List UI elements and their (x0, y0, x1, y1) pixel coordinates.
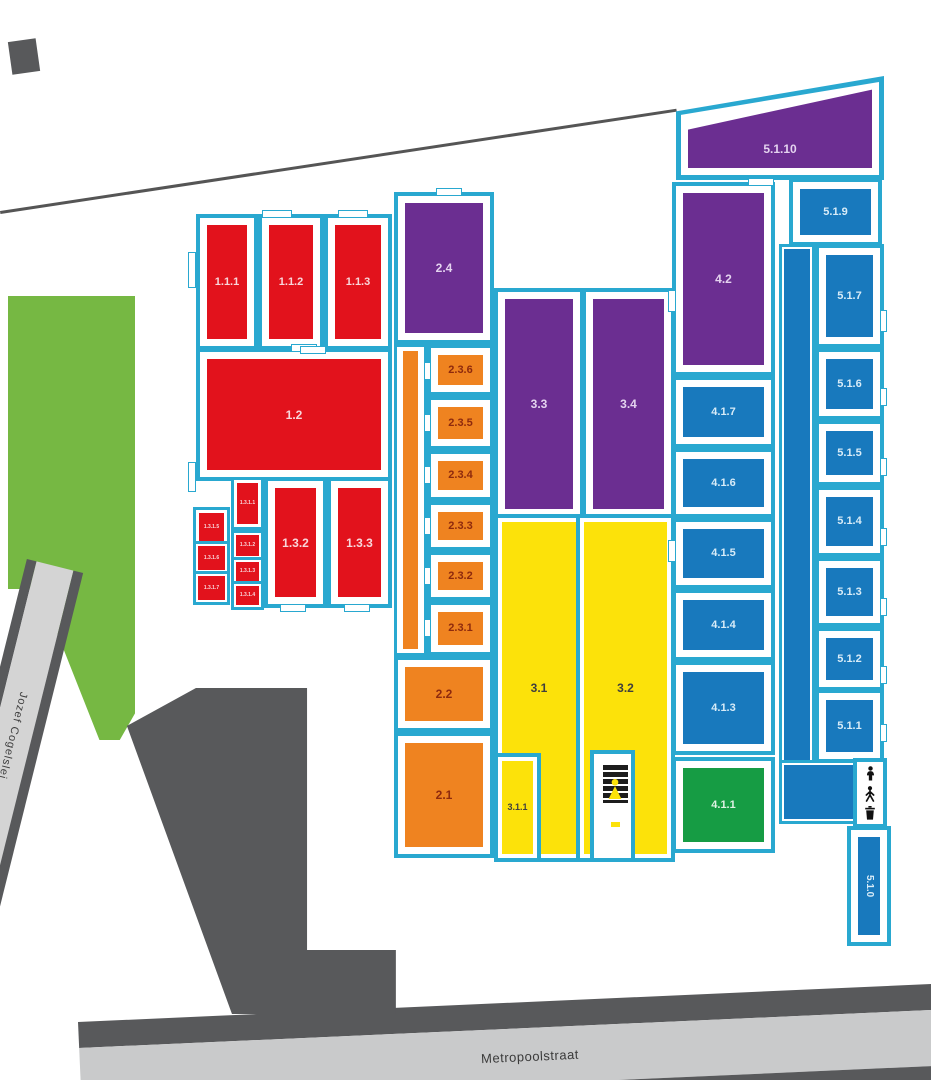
unit-fill (403, 351, 418, 649)
unit-4.1.6[interactable]: 4.1.6 (672, 448, 775, 518)
unit-label: 4.1.5 (711, 548, 735, 559)
door-mark (280, 604, 306, 612)
unit-fill: 2.3.5 (438, 407, 483, 439)
unit-fill: 1.3.1.1 (237, 483, 258, 524)
stairwell[interactable] (590, 750, 635, 862)
unit-label: 2.3.2 (448, 571, 472, 582)
unit-label: 3.4 (620, 398, 637, 410)
unit-fill: 1.3.1.7 (198, 576, 225, 600)
door-mark (344, 604, 370, 612)
unit-fill: 1.1.3 (335, 225, 381, 339)
door-mark (880, 724, 887, 742)
unit-label: 5.1.4 (837, 516, 861, 527)
door-mark (880, 598, 887, 616)
unit-corridor-5[interactable] (779, 244, 815, 768)
unit-fill (784, 249, 810, 763)
unit-4.2[interactable]: 4.2 (672, 182, 775, 376)
unit-fill: 1.3.1.5 (199, 513, 224, 541)
door-mark (668, 290, 676, 312)
unit-label: 5.1.1 (837, 721, 861, 732)
unit-fill: 5.1.0 (858, 837, 880, 935)
door-mark (880, 666, 887, 684)
unit-fill: 4.1.1 (683, 768, 764, 842)
unit-label: 2.3.6 (448, 365, 472, 376)
person-icon (864, 766, 877, 781)
unit-fill: 2.3.6 (438, 355, 483, 385)
unit-fill: 1.3.3 (338, 488, 381, 597)
site-plan: Metropoolstraat Jozef Cogelslei 1.1.11.1… (0, 0, 931, 1080)
door-mark (424, 567, 431, 585)
unit-label: 3.1 (531, 682, 548, 694)
unit-2.3.3[interactable]: 2.3.3 (427, 501, 494, 551)
unit-label: 2.4 (436, 262, 453, 274)
unit-fill: 2.2 (405, 667, 483, 721)
unit-5.1.6[interactable]: 5.1.6 (815, 348, 884, 420)
door-mark (424, 414, 431, 432)
unit-label: 4.1.6 (711, 478, 735, 489)
door-mark (880, 528, 887, 546)
door-mark (262, 210, 292, 218)
unit-fill: 5.1.9 (800, 189, 871, 235)
unit-label: 1.1.3 (346, 277, 370, 288)
unit-fill: 4.1.7 (683, 387, 764, 437)
unit-fill: 5.1.7 (826, 255, 873, 337)
unit-1.1.1[interactable]: 1.1.1 (196, 214, 258, 350)
unit-fill: 5.1.1 (826, 700, 873, 752)
unit-fill: 1.3.1.2 (236, 535, 259, 556)
door-mark (424, 362, 431, 380)
unit-label: 1.3.1.1 (240, 501, 255, 506)
door-mark (880, 388, 887, 406)
unit-fill: 1.3.2 (275, 488, 316, 597)
unit-label: 1.3.1.5 (204, 525, 219, 530)
unit-1.3.1.7[interactable]: 1.3.1.7 (193, 571, 230, 605)
unit-2.3.1[interactable]: 2.3.1 (427, 601, 494, 656)
unit-fill: 5.1.6 (826, 359, 873, 409)
unit-label: 1.1.2 (279, 277, 303, 288)
door-mark (424, 619, 431, 637)
unit-label: 5.1.5 (837, 448, 861, 459)
unit-fill: 2.3.4 (438, 461, 483, 490)
street-metropoolstraat: Metropoolstraat (78, 982, 931, 1080)
door-mark (748, 178, 774, 186)
unit-5.1.4[interactable]: 5.1.4 (815, 486, 884, 557)
property-boundary-line (0, 109, 677, 214)
unit-1.3.3[interactable]: 1.3.3 (327, 477, 392, 608)
unit-label: 2.1 (436, 789, 453, 801)
unit-1.3.1.6[interactable]: 1.3.1.6 (193, 541, 230, 575)
unit-corridor-2[interactable] (394, 344, 427, 656)
neighbor-building (125, 686, 400, 1016)
unit-fill: 3.1.1 (502, 761, 533, 854)
unit-fill: 5.1.2 (826, 638, 873, 680)
unit-label: 1.3.2 (282, 537, 309, 549)
unit-fill: 1.1.1 (207, 225, 247, 339)
unit-1.3.2[interactable]: 1.3.2 (264, 477, 327, 608)
unit-2.3.6[interactable]: 2.3.6 (427, 344, 494, 396)
unit-label: 2.3.3 (448, 521, 472, 532)
unit-fill: 1.1.2 (269, 225, 313, 339)
unit-label: 5.1.10 (763, 142, 796, 156)
unit-label: 5.1.9 (823, 207, 847, 218)
unit-fill: 2.4 (405, 203, 483, 333)
unit-5.1.5[interactable]: 5.1.5 (815, 420, 884, 486)
unit-1.1.3[interactable]: 1.1.3 (324, 214, 392, 350)
unit-label: 1.3.1.4 (240, 593, 255, 598)
unit-5.1.7[interactable]: 5.1.7 (815, 244, 884, 348)
unit-label: 2.3.4 (448, 470, 472, 481)
unit-fill: 3.3 (505, 299, 573, 509)
unit-fill: 2.3.1 (438, 612, 483, 645)
unit-label: 4.2 (715, 273, 732, 285)
unit-2.3.5[interactable]: 2.3.5 (427, 396, 494, 450)
unit-fill (784, 765, 854, 819)
stair-marker (611, 822, 620, 827)
unit-2.3.2[interactable]: 2.3.2 (427, 551, 494, 601)
door-mark (424, 466, 431, 484)
unit-1.2[interactable]: 1.2 (196, 348, 392, 481)
unit-4.1.4[interactable]: 4.1.4 (672, 589, 775, 661)
unit-4.1.5[interactable]: 4.1.5 (672, 518, 775, 589)
unit-5.1.9[interactable]: 5.1.9 (789, 178, 882, 246)
facilities-cell[interactable] (853, 758, 887, 828)
unit-fill: 1.3.1.4 (236, 586, 259, 605)
unit-5.1.0[interactable]: 5.1.0 (847, 826, 891, 946)
unit-3.1.1[interactable]: 3.1.1 (494, 753, 541, 862)
unit-2.3.4[interactable]: 2.3.4 (427, 450, 494, 501)
unit-2.2[interactable]: 2.2 (394, 656, 494, 732)
unit-label: 3.2 (617, 682, 634, 694)
unit-fill: 5.1.4 (826, 497, 873, 546)
unit-fill: 4.1.3 (683, 672, 764, 744)
unit-fill: 4.1.6 (683, 459, 764, 507)
unit-1.3.1.4[interactable]: 1.3.1.4 (231, 581, 264, 610)
door-mark (188, 252, 196, 288)
unit-4.1.7[interactable]: 4.1.7 (672, 376, 775, 448)
unit-corridor-5-foot[interactable] (779, 760, 859, 824)
unit-label: 1.3.3 (346, 537, 373, 549)
unit-5.1.1[interactable]: 5.1.1 (815, 689, 884, 763)
unit-3.3[interactable]: 3.3 (494, 288, 584, 520)
unit-fill: 2.3.3 (438, 512, 483, 540)
door-mark (338, 210, 368, 218)
unit-label: 5.1.2 (837, 654, 861, 665)
door-mark (880, 310, 887, 332)
neighbor-building-small (8, 38, 40, 75)
unit-fill: 2.1 (405, 743, 483, 847)
door-mark (188, 462, 196, 492)
unit-fill: 4.2 (683, 193, 764, 365)
street-label-bottom: Metropoolstraat (481, 1046, 579, 1065)
unit-label: 5.1.3 (837, 587, 861, 598)
unit-2.1[interactable]: 2.1 (394, 732, 494, 858)
unit-2.4[interactable]: 2.4 (394, 192, 494, 344)
unit-4.1.3[interactable]: 4.1.3 (672, 661, 775, 755)
unit-5.1.3[interactable]: 5.1.3 (815, 557, 884, 627)
unit-label: 1.2 (286, 409, 303, 421)
unit-label: 4.1.4 (711, 620, 735, 631)
unit-fill: 4.1.4 (683, 600, 764, 650)
unit-label: 4.1.1 (711, 800, 735, 811)
unit-fill: 2.3.2 (438, 562, 483, 590)
unit-label: 2.2 (436, 688, 453, 700)
unit-label: 5.1.7 (837, 291, 861, 302)
unit-fill: 5.1.3 (826, 568, 873, 616)
unit-3.4[interactable]: 3.4 (582, 288, 675, 520)
door-mark (880, 458, 887, 476)
unit-fill: 5.1.5 (826, 431, 873, 475)
unit-label: 4.1.7 (711, 407, 735, 418)
unit-fill: 1.3.1.6 (198, 546, 225, 570)
unit-fill: 1.2 (207, 359, 381, 470)
unit-label: 1.3.1.6 (204, 556, 219, 561)
unit-fill: 3.4 (593, 299, 664, 509)
unit-label: 3.1.1 (507, 803, 527, 812)
unit-label: 1.3.1.7 (204, 586, 219, 591)
walking-person-icon (863, 786, 877, 802)
unit-label: 5.1.0 (864, 875, 874, 897)
unit-1.3.1.1[interactable]: 1.3.1.1 (231, 477, 264, 530)
door-mark (436, 188, 462, 196)
door-mark (424, 517, 431, 535)
unit-5.1.2[interactable]: 5.1.2 (815, 627, 884, 691)
unit-label: 1.3.1.2 (240, 543, 255, 548)
door-mark (668, 540, 676, 562)
unit-label: 1.3.1.3 (240, 569, 255, 574)
unit-label: 3.3 (531, 398, 548, 410)
unit-label: 2.3.1 (448, 623, 472, 634)
trash-bin-icon (864, 806, 876, 820)
unit-1.1.2[interactable]: 1.1.2 (258, 214, 324, 350)
unit-label: 5.1.6 (837, 379, 861, 390)
stair-person-icon (606, 778, 624, 802)
unit-label: 4.1.3 (711, 703, 735, 714)
door-mark (300, 346, 326, 354)
unit-fill: 4.1.5 (683, 529, 764, 578)
unit-label: 1.1.1 (215, 277, 239, 288)
unit-label: 2.3.5 (448, 418, 472, 429)
unit-4.1.1[interactable]: 4.1.1 (672, 757, 775, 853)
unit-fill: 1.3.1.3 (236, 562, 259, 581)
